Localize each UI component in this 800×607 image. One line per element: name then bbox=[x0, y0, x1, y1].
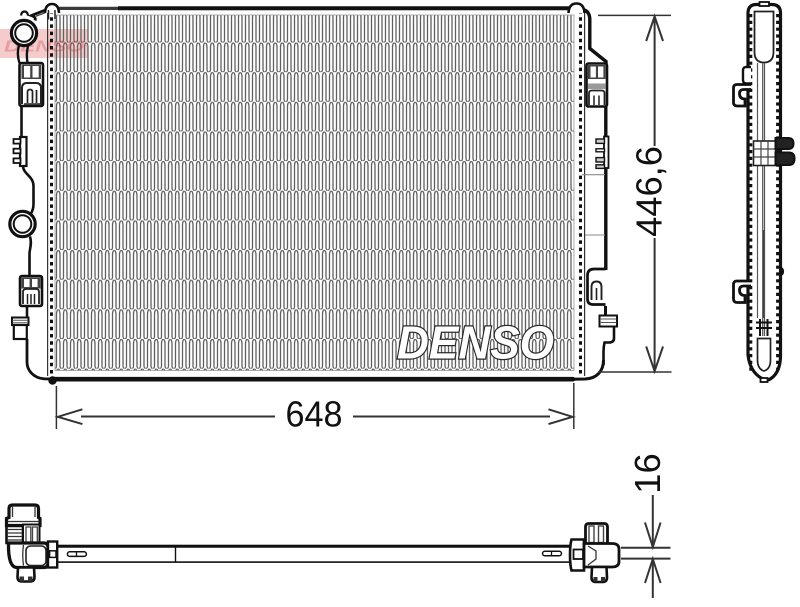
svg-text:DENSO: DENSO bbox=[397, 317, 554, 369]
svg-text:16: 16 bbox=[627, 453, 668, 493]
svg-text:446,6: 446,6 bbox=[629, 146, 670, 237]
svg-text:648: 648 bbox=[286, 394, 343, 435]
